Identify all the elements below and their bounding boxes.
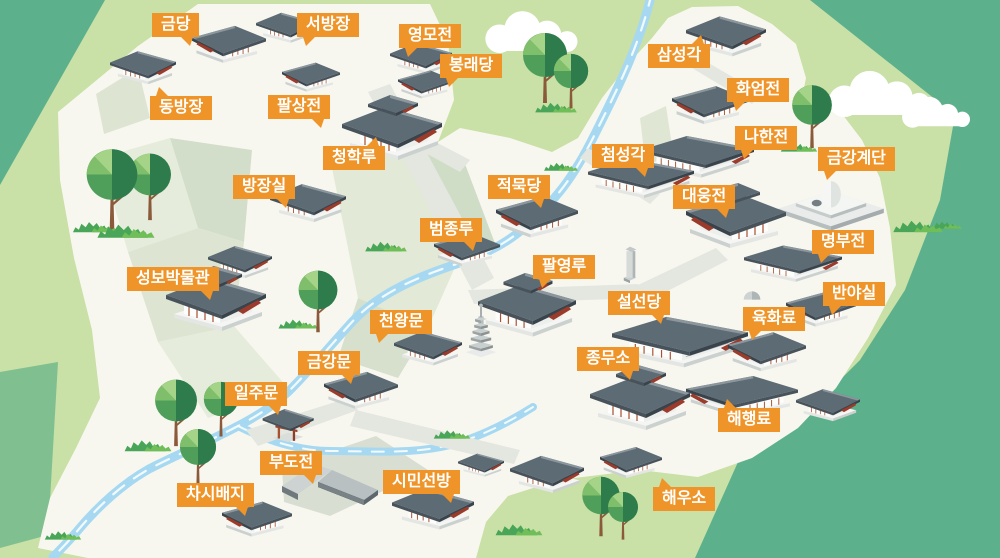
map-label-paryeongnu: 팔영루 xyxy=(533,255,595,279)
map-label-geumgangmun: 금강문 xyxy=(298,351,360,375)
map-label-beomjongnu: 범종루 xyxy=(420,218,482,242)
map-label-seongbobangmulgwan: 성보박물관 xyxy=(127,267,219,291)
map-label-cheonwangmun: 천왕문 xyxy=(370,310,432,334)
map-label-dongbangjang: 동방장 xyxy=(150,96,212,120)
map-label-jeongmukdang: 적묵당 xyxy=(488,175,550,199)
map-label-samseonggak: 삼성각 xyxy=(648,44,710,68)
map-label-jongmuso: 종무소 xyxy=(577,347,639,371)
map-label-cheonghangnu: 청학루 xyxy=(323,146,385,170)
map-label-yukhwaryo: 육화료 xyxy=(743,307,805,331)
map-label-geumdang: 금당 xyxy=(152,13,199,37)
map-label-daeungjeon: 대웅전 xyxy=(673,185,735,209)
map-label-palsangjeon: 팔상전 xyxy=(268,95,330,119)
map-label-seolseondang: 설선당 xyxy=(608,291,670,315)
map-label-nahanjeon: 나한전 xyxy=(735,126,797,150)
map-label-bongnaedang: 봉래당 xyxy=(440,54,502,78)
map-label-seobangjang: 서방장 xyxy=(297,13,359,37)
temple-map: 금당서방장영모전봉래당삼성각화엄전동방장팔상전나한전청학루첨성각금강계단방장실적… xyxy=(0,0,1000,558)
map-label-cheomseonggak: 첨성각 xyxy=(592,144,654,168)
map-label-hwaeomjeon: 화엄전 xyxy=(727,78,789,102)
map-label-yeongmojeon: 영모전 xyxy=(399,24,461,48)
map-label-iljumun: 일주문 xyxy=(225,382,287,406)
map-label-bangjangsil: 방장실 xyxy=(233,175,295,199)
map-label-chasibaeji: 차시배지 xyxy=(177,483,254,507)
map-label-myeongbujeon: 명부전 xyxy=(812,230,874,254)
map-labels: 금당서방장영모전봉래당삼성각화엄전동방장팔상전나한전청학루첨성각금강계단방장실적… xyxy=(0,0,1000,558)
map-label-geumganggyedan: 금강계단 xyxy=(818,147,895,171)
map-label-siminseonbang: 시민선방 xyxy=(383,470,460,494)
map-label-haeuso: 해우소 xyxy=(653,487,715,511)
map-label-banyasil: 반야실 xyxy=(823,282,885,306)
map-label-haehaengnyo: 해행료 xyxy=(718,408,780,432)
map-label-budojeon: 부도전 xyxy=(260,451,322,475)
